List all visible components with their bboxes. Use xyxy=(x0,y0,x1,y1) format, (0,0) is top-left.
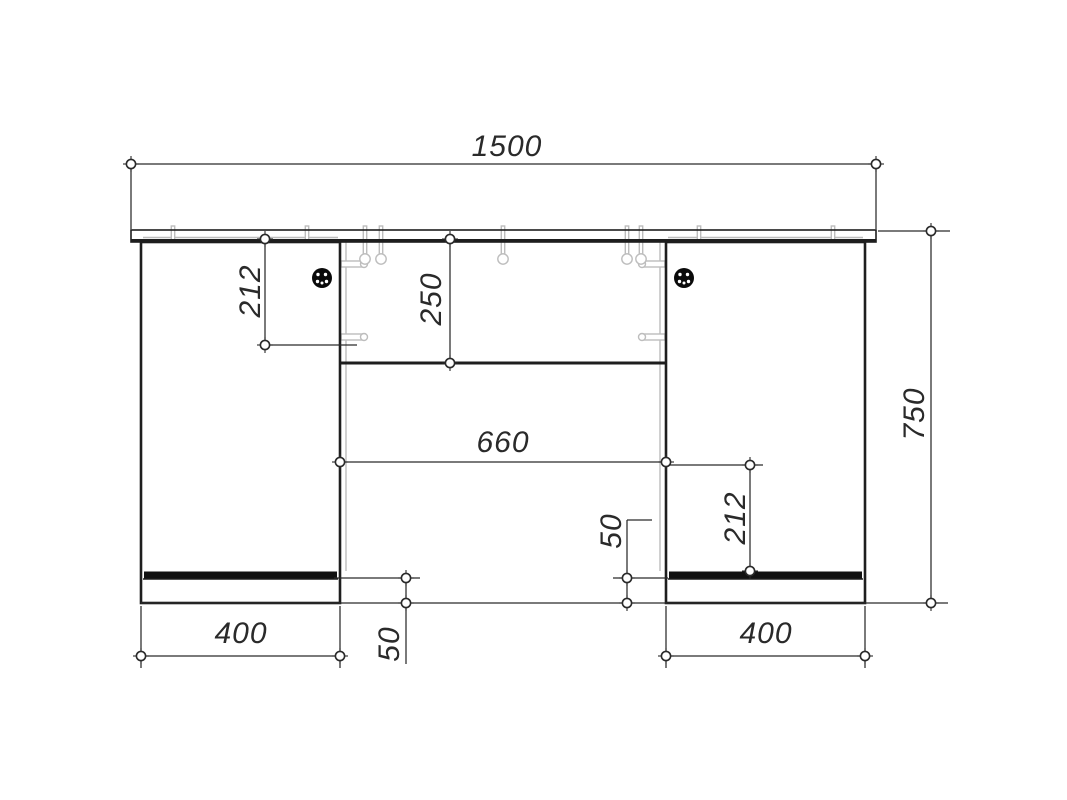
dim-end-marker xyxy=(619,595,635,611)
dim-label-total-width: 1500 xyxy=(472,130,543,163)
dim-end-marker xyxy=(619,570,635,586)
dim-end-marker xyxy=(398,595,414,611)
desk-assembly-drawing: 1500 750 660 250 212 212 50 50 400 400 xyxy=(0,0,1067,800)
dim-label-left-plinth-height: 50 xyxy=(373,626,406,661)
right-bottom-panel xyxy=(669,572,862,579)
dim-label-left-shelf-offset: 212 xyxy=(234,264,267,318)
dim-label-left-pedestal-width: 400 xyxy=(214,617,267,650)
dim-end-marker xyxy=(923,223,939,239)
dim-end-marker xyxy=(923,595,939,611)
dim-end-marker xyxy=(123,156,139,172)
dim-end-marker xyxy=(658,648,674,664)
dim-label-knee-space-width: 660 xyxy=(476,426,529,459)
dim-end-marker xyxy=(857,648,873,664)
dim-label-right-pedestal-width: 400 xyxy=(739,617,792,650)
dim-end-marker xyxy=(398,570,414,586)
left-door-knob xyxy=(312,268,332,288)
dim-label-upper-panel-height: 250 xyxy=(415,272,448,326)
left-bottom-panel xyxy=(144,572,337,579)
dim-label-overall-height: 750 xyxy=(898,387,931,440)
dim-label-right-plinth-height: 50 xyxy=(595,513,628,548)
right-door-knob xyxy=(674,268,694,288)
drawing-canvas: 1500 750 660 250 212 212 50 50 400 400 xyxy=(0,0,1067,800)
dim-end-marker xyxy=(442,355,458,371)
dim-end-marker xyxy=(868,156,884,172)
right-pedestal xyxy=(666,242,865,603)
dim-label-right-shelf-offset: 212 xyxy=(719,491,752,545)
dim-end-marker xyxy=(133,648,149,664)
dim-end-marker xyxy=(332,648,348,664)
